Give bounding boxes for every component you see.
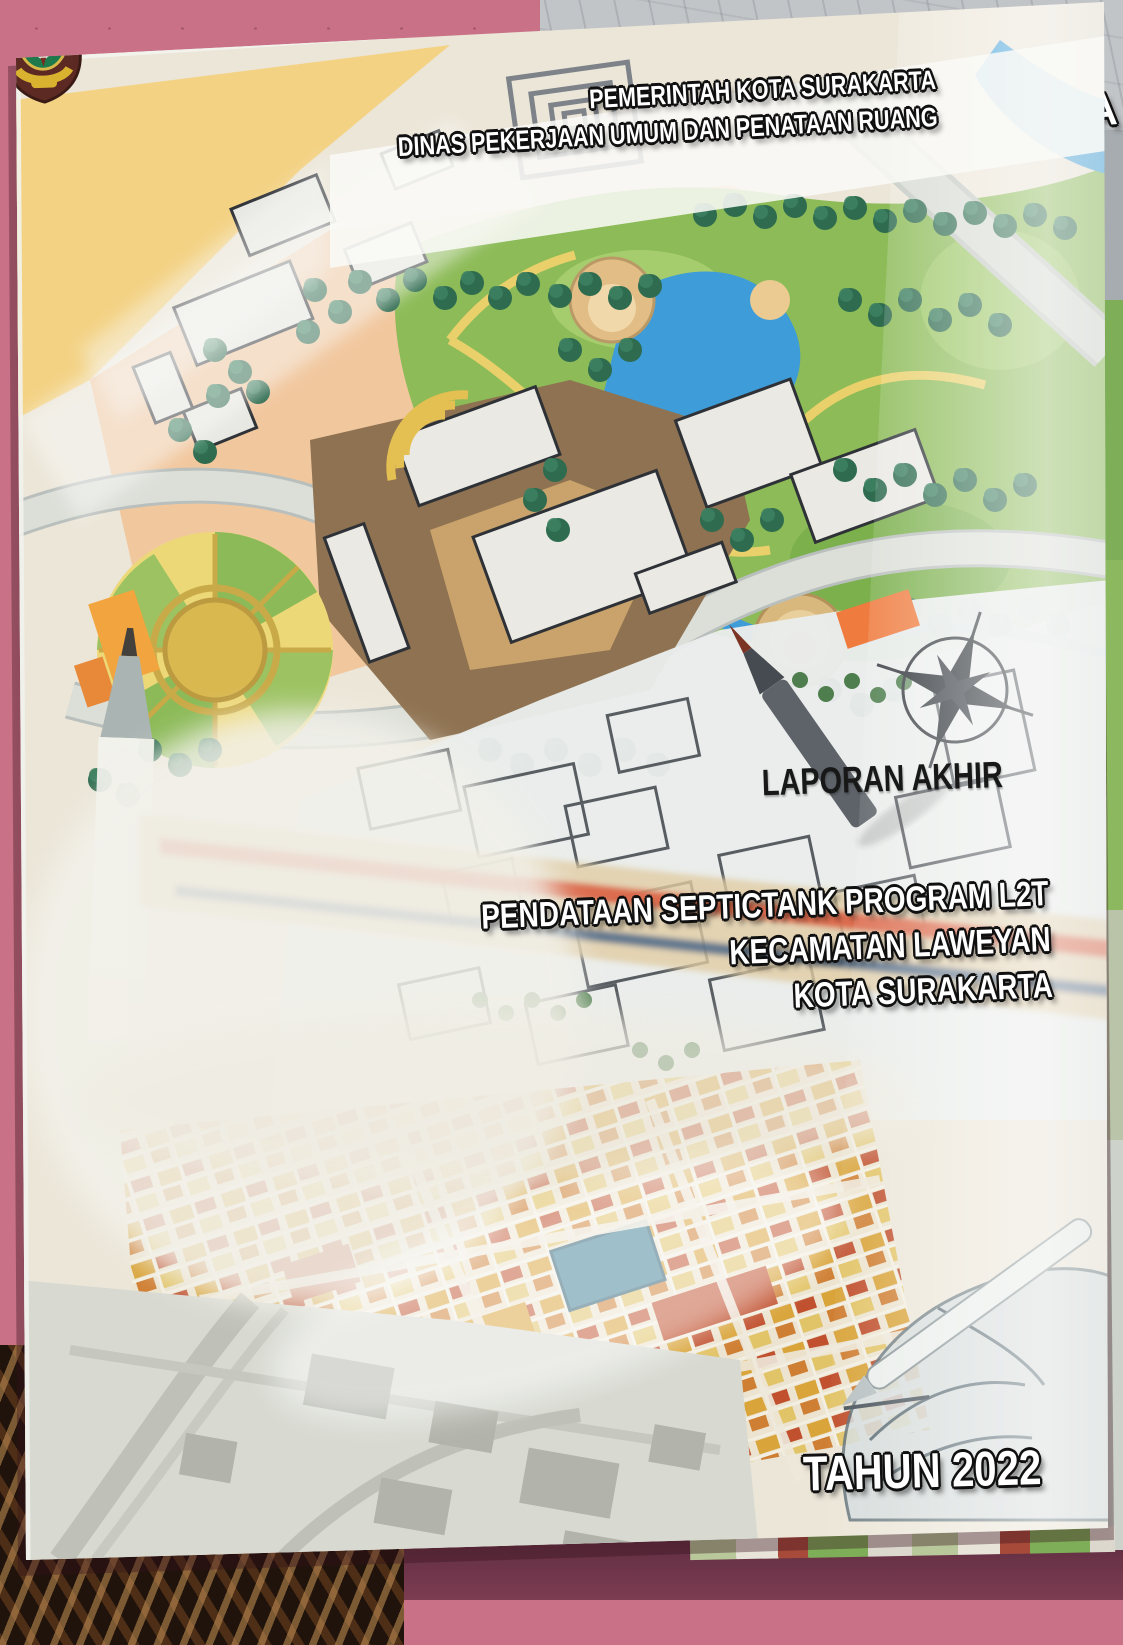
- year-label: TAHUN 2022: [802, 1440, 1042, 1503]
- cover-art-map: [0, 0, 1123, 1600]
- report-type-label: LAPORAN AKHIR: [761, 754, 1003, 804]
- photo-of-report-cover: { "scene": { "description": "Photograph …: [0, 0, 1123, 1600]
- report-cover: PEMERINTAH KOTA SURAKARTA DINAS PEKERJAA…: [0, 0, 1123, 1600]
- title-line-3: KOTA SURAKARTA: [793, 966, 1054, 1016]
- title-line-2: KECAMATAN LAWEYAN: [729, 920, 1052, 972]
